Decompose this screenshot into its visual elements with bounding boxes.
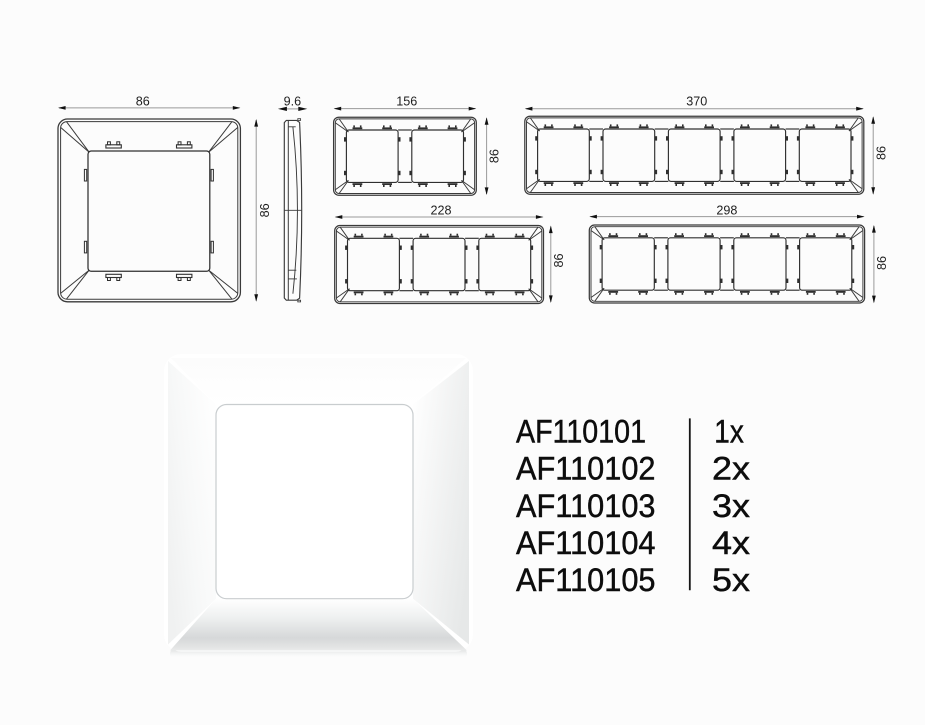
svg-text:1x: 1x (714, 413, 744, 449)
svg-text:AF110102: AF110102 (516, 451, 656, 487)
svg-text:AF110101: AF110101 (516, 413, 646, 449)
svg-text:156: 156 (396, 94, 417, 108)
svg-text:3x: 3x (712, 488, 750, 524)
svg-text:86: 86 (136, 94, 150, 108)
svg-text:86: 86 (258, 203, 272, 217)
svg-text:228: 228 (430, 204, 451, 218)
svg-text:298: 298 (716, 203, 737, 217)
svg-text:4x: 4x (712, 525, 750, 561)
svg-text:86: 86 (874, 146, 888, 160)
svg-text:86: 86 (552, 253, 566, 267)
svg-text:5x: 5x (712, 562, 750, 598)
svg-text:AF110105: AF110105 (516, 562, 656, 598)
svg-text:2x: 2x (712, 451, 750, 487)
svg-text:370: 370 (686, 94, 707, 108)
svg-text:9.6: 9.6 (284, 95, 302, 109)
svg-text:86: 86 (875, 256, 889, 270)
svg-text:AF110104: AF110104 (516, 525, 656, 561)
svg-text:86: 86 (488, 149, 502, 163)
svg-text:AF110103: AF110103 (516, 488, 656, 524)
